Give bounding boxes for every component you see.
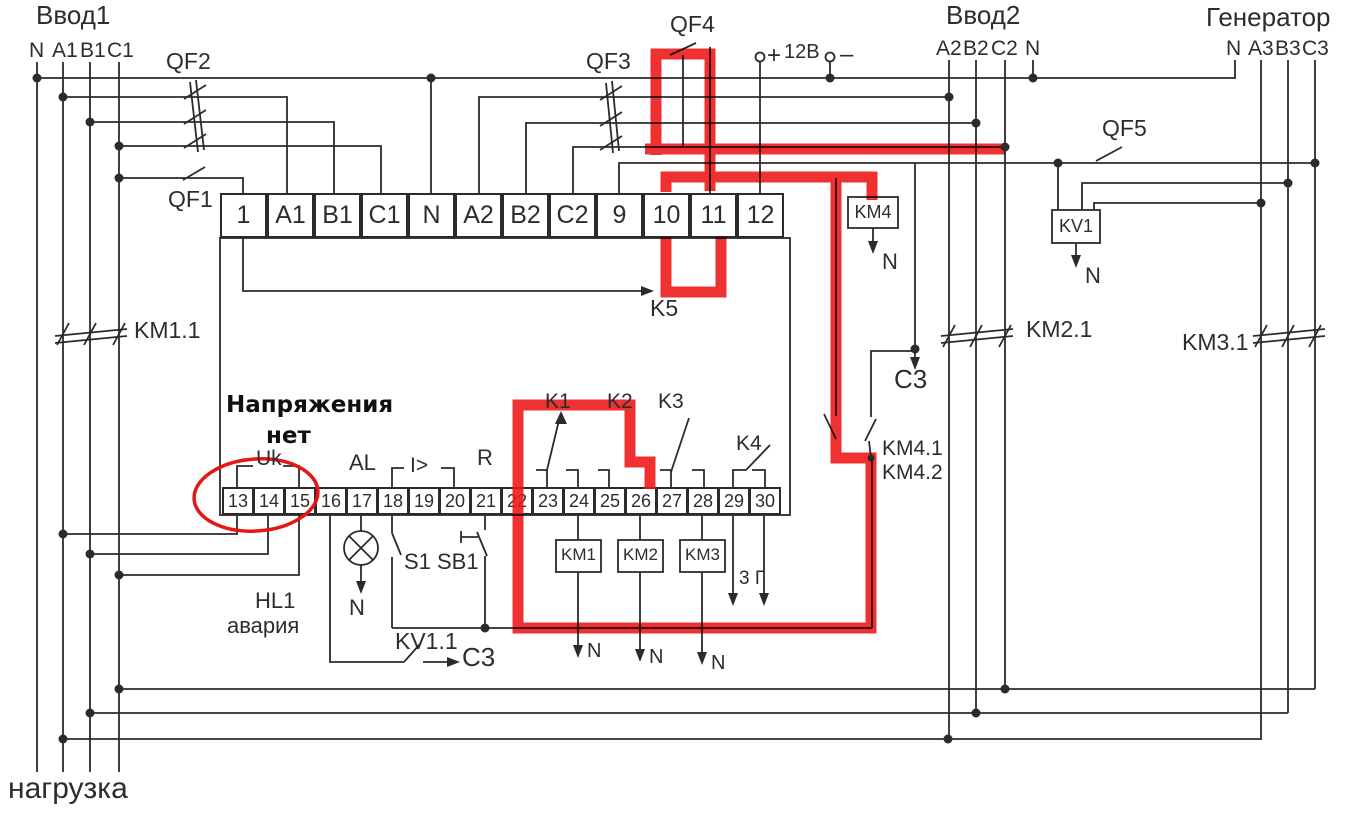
title-input1: Ввод1 [36, 2, 110, 28]
label-out-29-30: 3 Г [739, 569, 765, 588]
label-km2-1: KM2.1 [1026, 318, 1092, 341]
terminal-cell-top-c1: C1 [361, 193, 408, 238]
km4-n-arrow [868, 241, 878, 254]
title-generator: Генератор [1206, 4, 1331, 30]
input2-line-a2: A2 [936, 38, 962, 59]
terminal-cell-28: 28 [687, 487, 719, 515]
highlight-qf4-loop [656, 54, 710, 191]
label-c3-top: C3 [894, 366, 927, 392]
terminal-cell-27: 27 [656, 487, 688, 515]
label-km2-coil: KM2 [618, 546, 663, 563]
km2-1-contact-symbol [941, 325, 1013, 347]
label-kv1-1: KV1.1 [395, 630, 458, 653]
label-12v-volts: 12В [784, 42, 820, 62]
label-k2: K2 [607, 391, 633, 412]
label-km4-n: N [882, 251, 898, 273]
input2-line-b2: B2 [963, 38, 989, 59]
label-reset: R [477, 447, 493, 469]
label-km3-n: N [711, 653, 725, 673]
note-no-voltage-line2: нет [266, 425, 311, 448]
schematic-page: 1 A1 B1 C1 N A2 B2 C2 9 10 11 12 13 14 1… [0, 0, 1361, 814]
highlight-k5-contact [666, 237, 721, 292]
km3-1-contact-symbol [1253, 325, 1325, 347]
terminal-cell-26: 26 [625, 487, 657, 515]
km1-1-contact-symbol [55, 323, 127, 345]
plus-12v-terminal [756, 53, 765, 62]
label-overcurrent: I> [410, 455, 428, 476]
terminal-cell-13: 13 [222, 487, 254, 515]
terminal-cell-19: 19 [408, 487, 440, 515]
km3-n-arrow [697, 652, 707, 665]
terminal-cell-top-b2: B2 [502, 193, 549, 238]
note-no-voltage-line1: Напряжения [226, 394, 393, 417]
title-load: нагрузка [8, 774, 128, 804]
qf2-breaker-symbol [184, 80, 206, 152]
label-12v-minus: – [840, 43, 853, 67]
km1-n-arrow [573, 645, 583, 658]
label-k1: K1 [545, 391, 571, 412]
label-alarm: авария [227, 615, 299, 637]
label-km3-coil: KM3 [680, 546, 725, 563]
terminal-cell-14: 14 [253, 487, 285, 515]
label-uk: Uk [256, 448, 282, 469]
label-qf3: QF3 [586, 50, 631, 73]
label-s1: S1 [404, 551, 431, 573]
terminal-cell-top-12: 12 [737, 193, 784, 238]
label-qf2: QF2 [166, 50, 211, 73]
input1-line-b1: B1 [80, 40, 106, 61]
hl1-lamp-symbol [344, 531, 378, 565]
arrowheads [356, 241, 1081, 667]
terminal-cell-top-a2: A2 [455, 193, 502, 238]
kv11-c3-arrow [447, 657, 460, 667]
label-km1-coil: KM1 [556, 546, 601, 563]
label-km4-2: KM4.2 [882, 462, 943, 483]
qf3-breaker-symbol [600, 81, 622, 153]
terminal-cell-23: 23 [532, 487, 564, 515]
terminal-cell-20: 20 [439, 487, 471, 515]
red-highlight-trace [518, 54, 1005, 628]
label-km4-coil: KM4 [848, 203, 898, 221]
label-k5: K5 [650, 297, 678, 320]
label-al: AL [349, 452, 376, 474]
gen-line-c3: C3 [1302, 38, 1329, 59]
kv1-n-arrow [1071, 255, 1081, 268]
label-kv1-n: N [1085, 265, 1101, 287]
gen-line-a3: A3 [1248, 38, 1274, 59]
terminal-cell-22: 22 [501, 487, 533, 515]
terminal-cell-30: 30 [749, 487, 781, 515]
terminal-cell-21: 21 [470, 487, 502, 515]
gen-line-n: N [1226, 38, 1241, 59]
terminal-cell-18: 18 [377, 487, 409, 515]
input1-line-n: N [29, 40, 44, 61]
terminal-cell-29: 29 [718, 487, 750, 515]
terminal-cell-15: 15 [284, 487, 316, 515]
input2-line-c2: C2 [991, 38, 1018, 59]
gen-line-b3: B3 [1275, 38, 1301, 59]
out30-arrow [759, 593, 769, 606]
terminal-cell-24: 24 [563, 487, 595, 515]
minus-12v-terminal [826, 53, 835, 62]
terminal-cell-top-c2: C2 [549, 193, 596, 238]
terminal-cell-top-a1: A1 [267, 193, 314, 238]
label-km1-n: N [587, 641, 601, 661]
label-qf5: QF5 [1102, 117, 1147, 140]
terminal-cell-top-9: 9 [596, 193, 643, 238]
out29-arrow [728, 593, 738, 606]
terminal-cell-top-1: 1 [220, 193, 267, 238]
terminal-cell-top-11: 11 [690, 193, 737, 238]
label-qf1: QF1 [168, 188, 213, 211]
label-hl1-n: N [349, 597, 365, 619]
qf4-breaker-symbol [670, 43, 696, 55]
label-qf4: QF4 [670, 13, 715, 36]
terminal-cell-top-n: N [408, 193, 455, 238]
label-sb1: SB1 [437, 551, 479, 573]
terminal-cell-25: 25 [594, 487, 626, 515]
qf5-breaker-symbol [1096, 147, 1122, 161]
terminal-cell-top-b1: B1 [314, 193, 361, 238]
label-km4-1: KM4.1 [882, 438, 943, 459]
label-km1-1: KM1.1 [134, 319, 200, 342]
label-km2-n: N [649, 647, 663, 667]
label-k3: K3 [658, 391, 684, 412]
hl1-n-arrow [356, 581, 366, 594]
label-k4: K4 [736, 433, 762, 454]
terminal-cell-16: 16 [315, 487, 347, 515]
label-kv1-coil: KV1 [1052, 217, 1100, 235]
terminal-cell-17: 17 [346, 487, 378, 515]
title-input2: Ввод2 [946, 2, 1020, 28]
qf1-breaker-symbol [183, 167, 205, 180]
input2-line-n: N [1025, 38, 1040, 59]
label-c3-bottom: C3 [462, 644, 495, 670]
terminal-cell-top-10: 10 [643, 193, 690, 238]
label-12v-plus: + [767, 44, 781, 68]
input1-line-c1: C1 [107, 40, 134, 61]
input1-line-a1: A1 [52, 40, 78, 61]
label-km3-1: KM3.1 [1182, 331, 1248, 354]
km2-n-arrow [635, 649, 645, 662]
label-hl1: HL1 [255, 590, 295, 612]
